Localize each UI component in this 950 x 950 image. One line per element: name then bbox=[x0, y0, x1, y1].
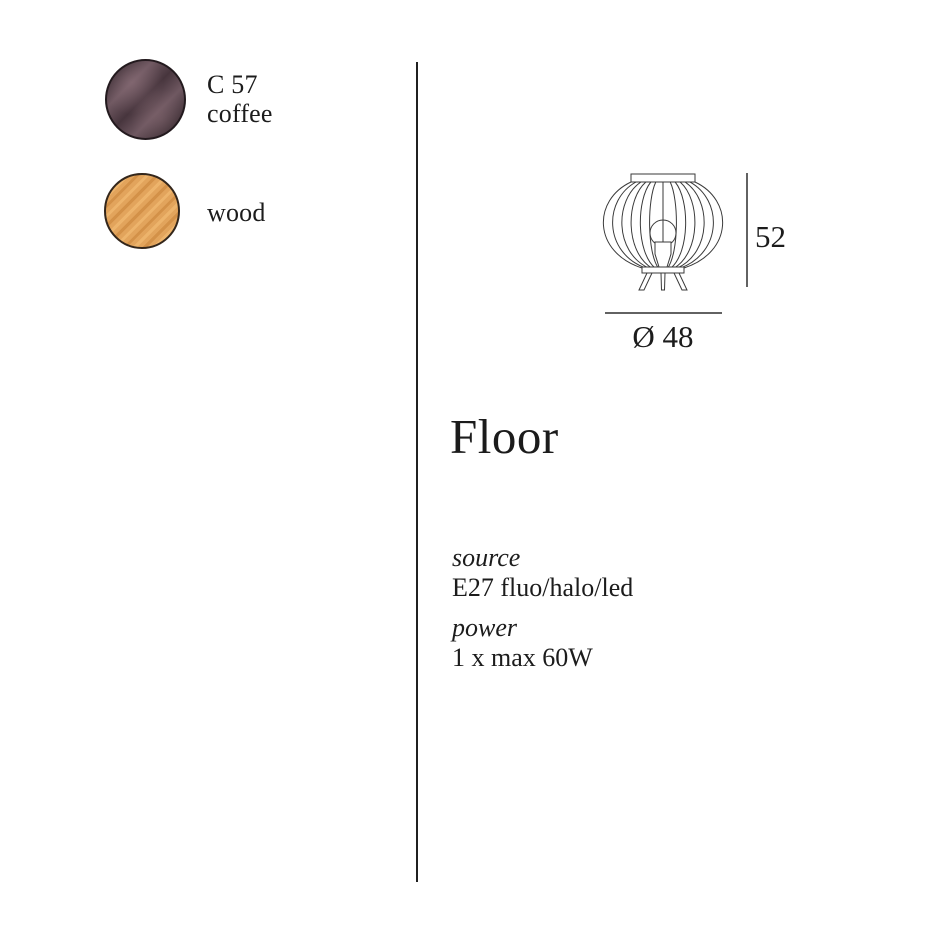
lamp-leg-right bbox=[674, 273, 687, 290]
wood-swatch-label: wood bbox=[207, 198, 266, 227]
diameter-dimension-label: Ø 48 bbox=[632, 319, 693, 354]
wood-finish-swatch bbox=[104, 173, 180, 249]
power-value: 1 x max 60W bbox=[452, 643, 633, 673]
lamp-base-bar bbox=[642, 267, 684, 273]
lamp-technical-drawing: 52 Ø 48 bbox=[565, 160, 800, 355]
source-value: E27 fluo/halo/led bbox=[452, 573, 633, 603]
coffee-finish-swatch bbox=[105, 59, 186, 140]
bulb-socket bbox=[655, 242, 671, 267]
lamp-leg-middle bbox=[661, 273, 665, 290]
wood-swatch-name: wood bbox=[207, 198, 266, 227]
lamp-leg-left bbox=[639, 273, 652, 290]
vertical-divider-line bbox=[416, 62, 418, 882]
coffee-swatch-label: C 57 coffee bbox=[207, 70, 273, 128]
spec-list: source E27 fluo/halo/led power 1 x max 6… bbox=[452, 543, 633, 673]
coffee-swatch-name: coffee bbox=[207, 99, 273, 128]
lamp-top-cap bbox=[631, 174, 695, 182]
source-label: source bbox=[452, 543, 633, 573]
product-title: Floor bbox=[450, 412, 559, 461]
power-label: power bbox=[452, 613, 633, 643]
coffee-swatch-code: C 57 bbox=[207, 70, 273, 99]
height-dimension-label: 52 bbox=[755, 219, 786, 254]
